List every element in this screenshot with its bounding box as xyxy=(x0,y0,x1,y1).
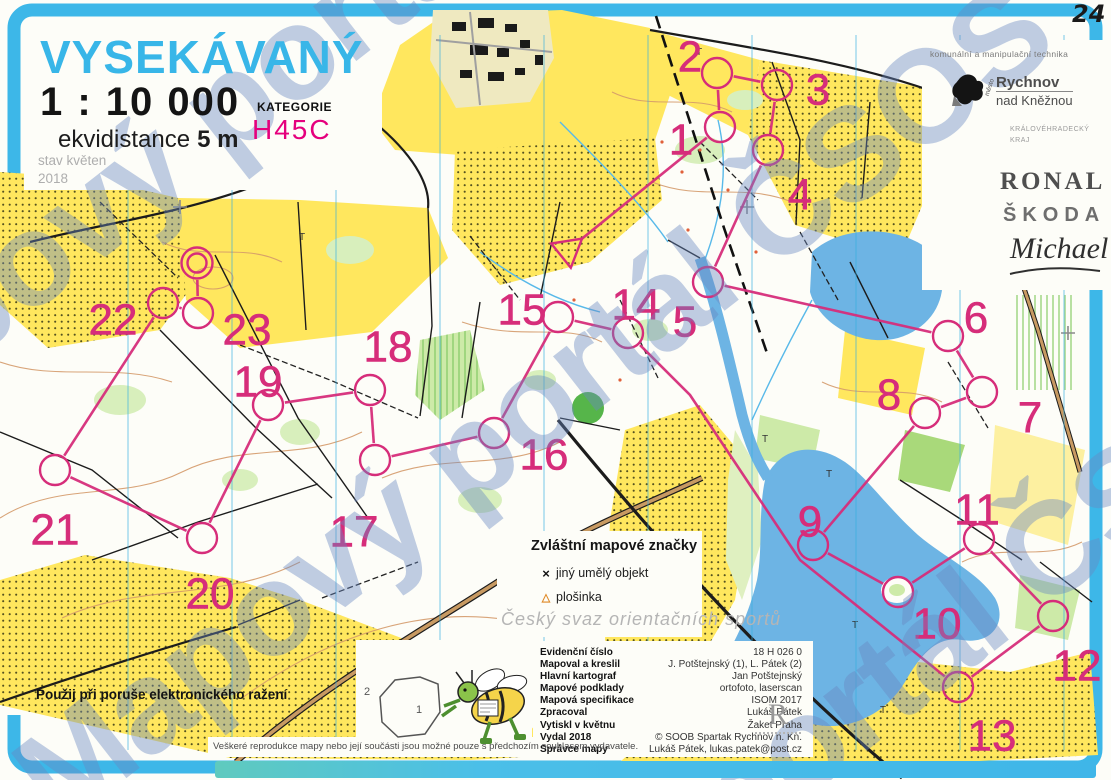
control-number-13: 13 xyxy=(968,712,1017,761)
legend-title: Zvláštní mapové značky xyxy=(531,538,697,554)
course-leg-line xyxy=(718,90,719,110)
legend-item-label: plošinka xyxy=(556,590,602,604)
publisher-monogram: R xyxy=(748,700,808,734)
credit-value: 18 H 026 0 xyxy=(613,647,802,659)
map-scale: 1 : 10 000 xyxy=(40,80,240,125)
legend-item: △plošinka xyxy=(536,585,648,609)
mascot-illustration xyxy=(360,642,532,754)
map-sheet: TTT TTT 12345678910111213141516171819202… xyxy=(0,0,1111,780)
legend-item: ×jiný umělý objekt xyxy=(536,561,648,585)
control-number-6: 6 xyxy=(964,294,988,343)
credit-label: Evidenční číslo xyxy=(540,647,613,659)
city-name-line1: Rychnov xyxy=(996,74,1059,91)
michael-swash xyxy=(1008,266,1104,278)
mapper-areas-outline xyxy=(380,677,440,737)
svg-text:T: T xyxy=(826,469,832,480)
sponsor-logo-ronal: RONAL xyxy=(1000,168,1105,196)
sponsor-logo-skoda: ŠKODA xyxy=(1003,204,1105,227)
credit-label: Zpracoval xyxy=(540,707,587,719)
category-value: H45C xyxy=(252,114,332,146)
equidistance: ekvidistance5 m xyxy=(58,126,238,154)
control-number-2: 2 xyxy=(678,33,702,82)
legend-items: ×jiný umělý objekt△plošinka xyxy=(536,561,648,609)
credit-value: Jan Potštejnský xyxy=(616,671,802,683)
region-line2: KRAJ xyxy=(1010,135,1089,146)
svg-text:T: T xyxy=(299,232,305,243)
credit-label: Vytiskl v květnu xyxy=(540,720,615,732)
punching-note: Použij při poruše elektronického ražení xyxy=(36,687,287,702)
course-leg-line xyxy=(179,308,181,309)
control-number-21: 21 xyxy=(31,506,80,555)
region-line1: KRÁLOVÉHRADECKÝ xyxy=(1010,124,1089,135)
mapper-area-2-label: 2 xyxy=(364,686,370,698)
status-line2: 2018 xyxy=(38,170,106,188)
control-number-12: 12 xyxy=(1053,642,1102,691)
control-number-8: 8 xyxy=(877,371,901,420)
handwritten-sheet-number: 24 xyxy=(1072,0,1105,28)
status-line1: stav květen xyxy=(38,152,106,170)
sponsor-logo-michael: Michael xyxy=(1010,232,1108,266)
city-logo-icon xyxy=(948,70,986,110)
platform-icon: △ xyxy=(536,591,556,604)
control-number-18: 18 xyxy=(364,323,413,372)
svg-text:T: T xyxy=(762,434,768,445)
sponsor-tagline: komunální a manipulační technika xyxy=(930,49,1068,59)
credit-label: Mapová specifikace xyxy=(540,695,634,707)
credit-value: J. Potštejnský (1), L. Pátek (2) xyxy=(620,659,802,671)
credit-row: Mapoval a kreslilJ. Potštejnský (1), L. … xyxy=(540,659,802,671)
control-number-19: 19 xyxy=(234,358,283,407)
credit-row: Hlavní kartografJan Potštejnský xyxy=(540,671,802,683)
credit-row: Mapové podkladyortofoto, laserscan xyxy=(540,683,802,695)
map-status: stav květen 2018 xyxy=(38,152,106,187)
credit-label: Mapoval a kreslil xyxy=(540,659,620,671)
credit-row: Evidenční číslo18 H 026 0 xyxy=(540,647,802,659)
control-number-7: 7 xyxy=(1018,394,1042,443)
federation-name: Český svaz orientačních sportů xyxy=(501,609,781,630)
equidistance-value: 5 m xyxy=(197,126,238,153)
footer-color-strip xyxy=(215,761,1096,778)
city-name-line2: nad Kněžnou xyxy=(996,91,1073,108)
publisher-monogram-smallprint xyxy=(755,732,801,734)
publisher-monogram-letter: R xyxy=(768,698,788,731)
credit-value: ortofoto, laserscan xyxy=(624,683,802,695)
credit-label: Hlavní kartograf xyxy=(540,671,616,683)
map-title: VYSEKÁVANÝ xyxy=(40,30,364,84)
control-number-22: 22 xyxy=(89,296,138,345)
wasp-mascot xyxy=(442,664,529,744)
legend-item-label: jiný umělý objekt xyxy=(556,566,648,580)
region-name: KRÁLOVÉHRADECKÝ KRAJ xyxy=(1010,124,1089,146)
equidistance-label: ekvidistance xyxy=(58,126,190,153)
mapper-area-1-label: 1 xyxy=(416,704,422,716)
control-number-9: 9 xyxy=(798,498,822,547)
man-made-object-icon: × xyxy=(536,566,556,581)
credit-label: Mapové podklady xyxy=(540,683,624,695)
control-number-1: 1 xyxy=(669,116,693,165)
category-label: KATEGORIE xyxy=(257,100,332,114)
control-number-23: 23 xyxy=(223,306,272,355)
